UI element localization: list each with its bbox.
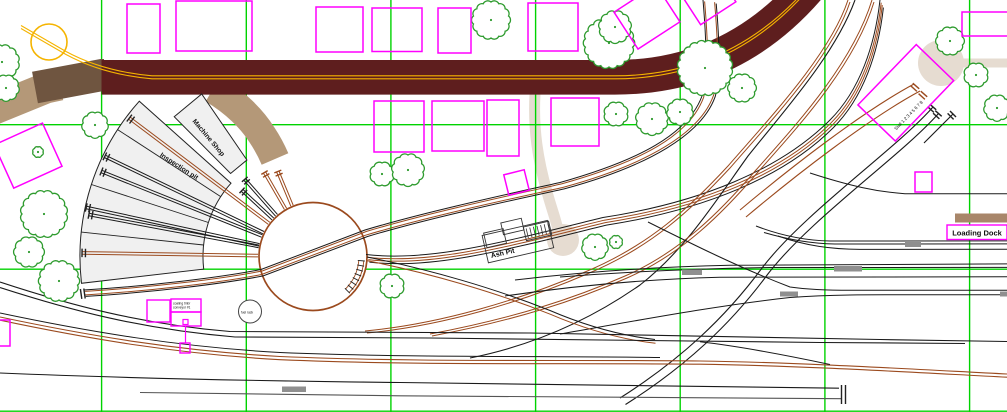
svg-text:conveyor #1: conveyor #1: [173, 306, 191, 310]
svg-text:fuel rack: fuel rack: [241, 311, 253, 315]
svg-text:Loading Dock: Loading Dock: [952, 229, 1002, 238]
